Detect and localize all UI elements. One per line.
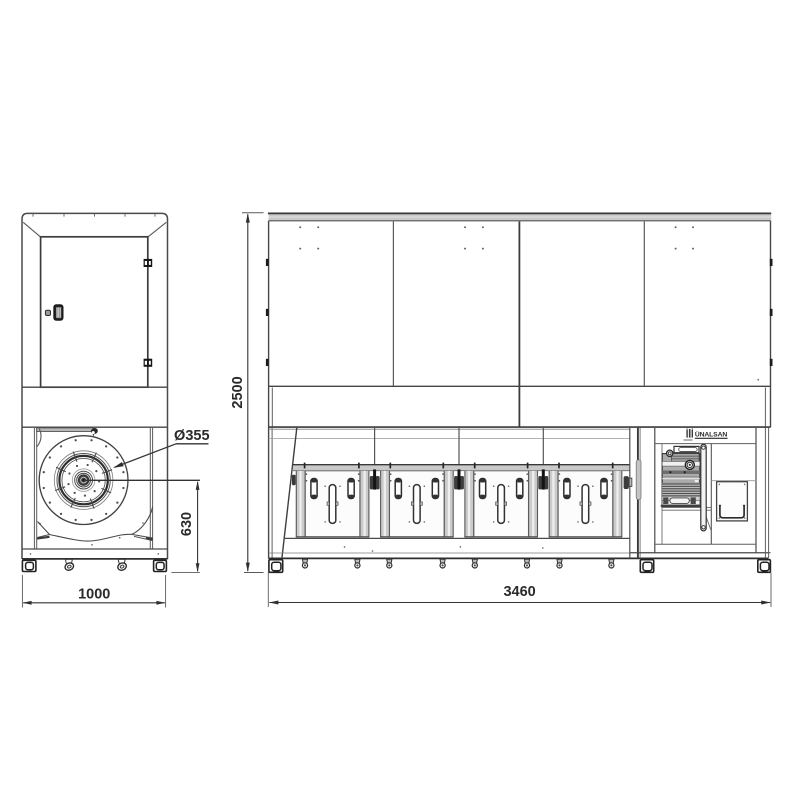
svg-text:630: 630 <box>179 512 195 536</box>
svg-text:3460: 3460 <box>503 584 535 600</box>
svg-text:1000: 1000 <box>78 586 110 602</box>
svg-text:2500: 2500 <box>230 376 246 408</box>
svg-text:ÜNALSAN: ÜNALSAN <box>695 430 727 439</box>
svg-text:Ø355: Ø355 <box>174 428 209 444</box>
